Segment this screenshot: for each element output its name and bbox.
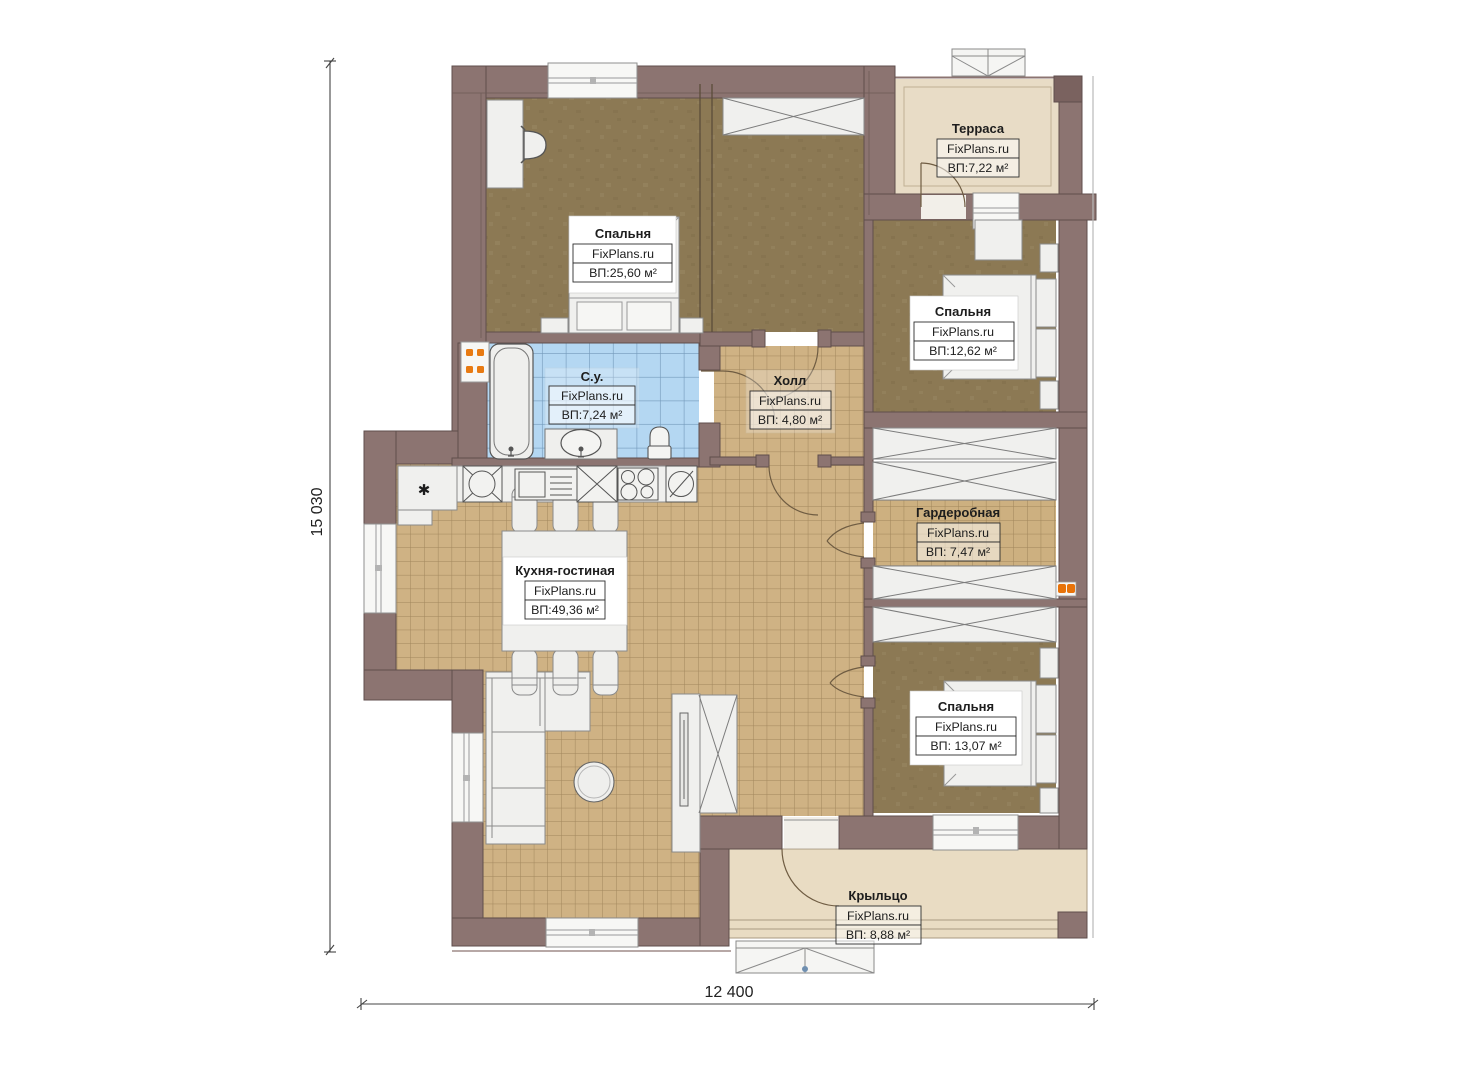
svg-text:ВП: 4,80 м²: ВП: 4,80 м²	[758, 413, 822, 427]
svg-text:15 030: 15 030	[309, 487, 326, 536]
svg-text:ВП:12,62 м²: ВП:12,62 м²	[929, 344, 997, 358]
svg-text:FixPlans.ru: FixPlans.ru	[592, 247, 654, 261]
svg-text:FixPlans.ru: FixPlans.ru	[932, 325, 994, 339]
svg-text:ВП: 7,47 м²: ВП: 7,47 м²	[926, 545, 990, 559]
svg-text:ВП: 13,07 м²: ВП: 13,07 м²	[930, 739, 1001, 753]
svg-text:FixPlans.ru: FixPlans.ru	[534, 584, 596, 598]
svg-text:FixPlans.ru: FixPlans.ru	[561, 389, 623, 403]
svg-text:✱: ✱	[418, 482, 431, 499]
svg-text:FixPlans.ru: FixPlans.ru	[935, 720, 997, 734]
svg-text:12 400: 12 400	[705, 984, 754, 1001]
svg-text:FixPlans.ru: FixPlans.ru	[759, 394, 821, 408]
svg-text:FixPlans.ru: FixPlans.ru	[927, 526, 989, 540]
svg-text:ВП:49,36 м²: ВП:49,36 м²	[531, 603, 599, 617]
svg-text:ВП:7,22 м²: ВП:7,22 м²	[948, 161, 1009, 175]
svg-text:Спальня: Спальня	[938, 699, 994, 714]
svg-text:ВП:7,24 м²: ВП:7,24 м²	[562, 408, 623, 422]
svg-text:Крыльцо: Крыльцо	[848, 888, 907, 903]
svg-text:Спальня: Спальня	[595, 226, 651, 241]
svg-text:Холл: Холл	[774, 373, 807, 388]
svg-text:Спальня: Спальня	[935, 304, 991, 319]
svg-text:FixPlans.ru: FixPlans.ru	[847, 909, 909, 923]
svg-text:Кухня-гостиная: Кухня-гостиная	[515, 563, 615, 578]
svg-text:С.у.: С.у.	[581, 369, 604, 384]
svg-text:ВП:25,60 м²: ВП:25,60 м²	[589, 266, 657, 280]
svg-text:FixPlans.ru: FixPlans.ru	[947, 142, 1009, 156]
svg-text:Терраса: Терраса	[952, 121, 1005, 136]
svg-text:Гардеробная: Гардеробная	[916, 505, 1000, 520]
svg-text:ВП: 8,88 м²: ВП: 8,88 м²	[846, 928, 910, 942]
